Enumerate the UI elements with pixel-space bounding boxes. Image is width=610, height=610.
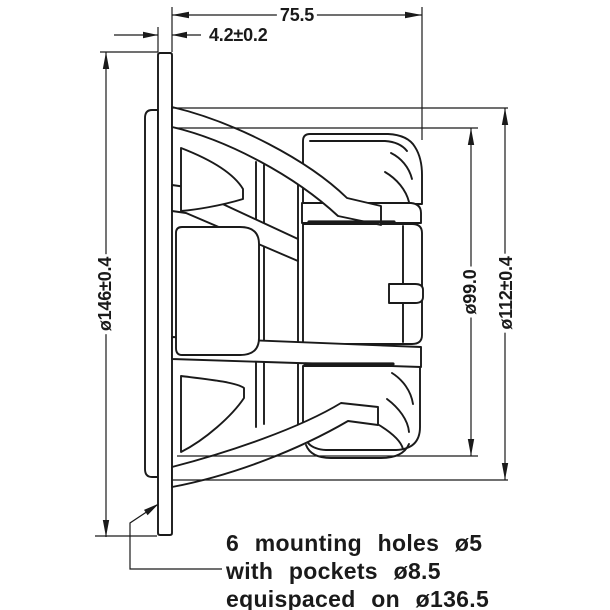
- terminal-tab: [389, 284, 423, 303]
- gasket-ring: [145, 110, 158, 477]
- mounting-note: 6 mounting holes ø5 with pockets ø8.5 eq…: [226, 529, 489, 610]
- arrow-thickness-right: [172, 32, 187, 38]
- arrow-depth-right: [405, 12, 422, 18]
- mounting-note-line-2: with pockets ø8.5: [226, 557, 489, 585]
- dim-label-magnet-diameter: ø99.0: [461, 266, 479, 317]
- arrow-112-bottom: [502, 463, 508, 480]
- arrow-99-bottom: [468, 439, 474, 456]
- arrow-146-bottom: [103, 520, 109, 537]
- basket-windows: [176, 148, 259, 452]
- flange-plate: [158, 53, 172, 535]
- basket-window-middle: [176, 227, 259, 355]
- mounting-note-line-3: equispaced on ø136.5: [226, 585, 489, 610]
- arrow-112-top: [502, 108, 508, 125]
- dim-label-basket-diameter: ø112±0.4: [497, 253, 515, 332]
- arrow-leader: [144, 504, 159, 516]
- basket-window-top: [181, 148, 243, 211]
- dim-label-depth: 75.5: [277, 6, 317, 24]
- arrow-99-top: [468, 128, 474, 145]
- arrow-thickness-left: [143, 32, 158, 38]
- basket-window-bottom: [181, 376, 244, 452]
- speaker-section: [145, 53, 423, 535]
- basket-ribs: [256, 162, 306, 436]
- technical-drawing-page: 75.5 4.2±0.2 ø146±0.4 ø99.0 ø112±0.4 6 m…: [0, 0, 610, 610]
- mounting-note-line-1: 6 mounting holes ø5: [226, 529, 489, 557]
- dim-label-front-diameter: ø146±0.4: [96, 254, 114, 334]
- dim-label-flange-thickness: 4.2±0.2: [206, 26, 271, 44]
- drawing-canvas: [0, 0, 610, 610]
- arrow-146-top: [103, 52, 109, 69]
- arrow-depth-left: [172, 12, 189, 18]
